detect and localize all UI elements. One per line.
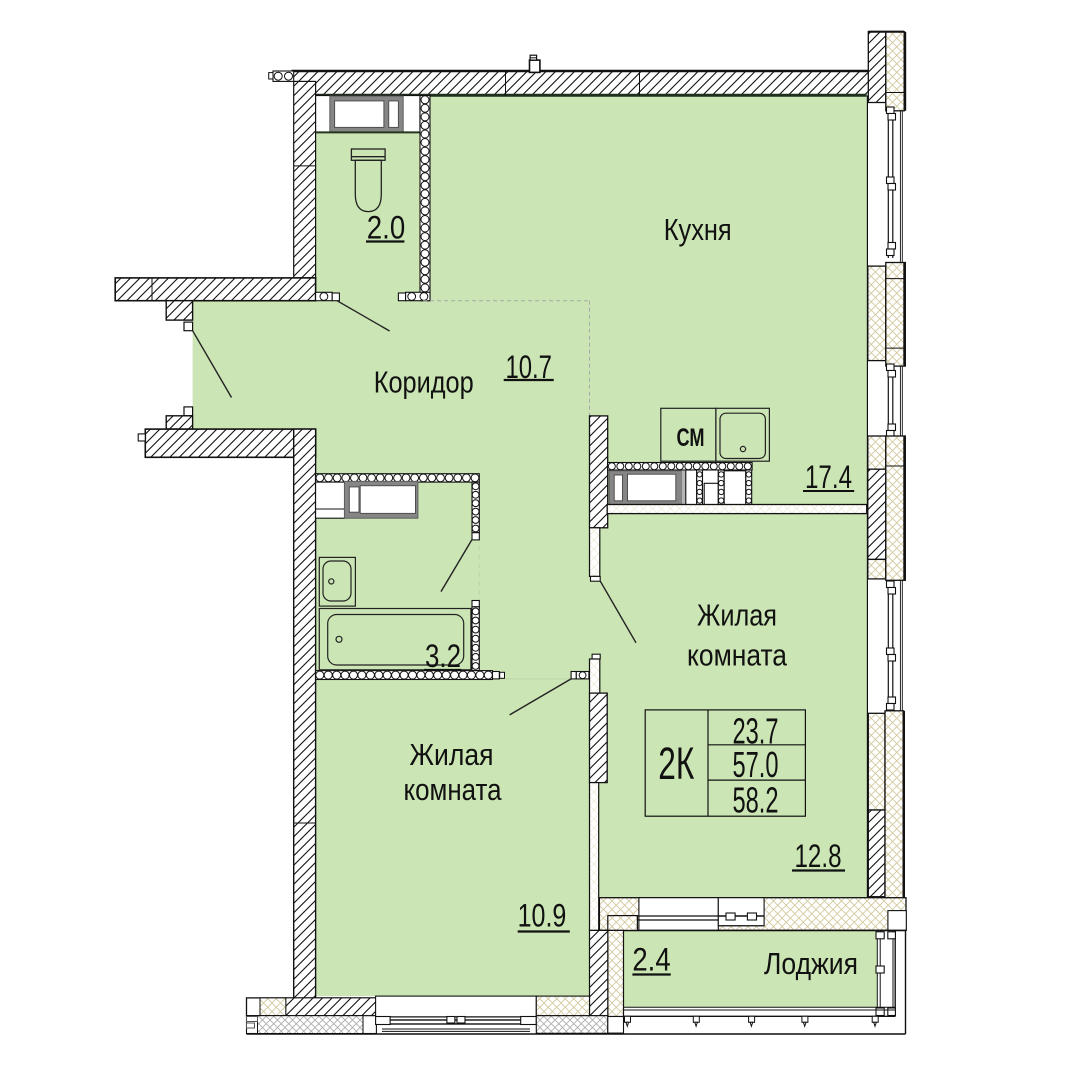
svg-text:17.4: 17.4 bbox=[805, 459, 852, 495]
svg-text:комната: комната bbox=[687, 638, 788, 673]
svg-text:58.2: 58.2 bbox=[733, 780, 779, 821]
svg-text:СМ: СМ bbox=[677, 424, 705, 452]
svg-text:3.2: 3.2 bbox=[425, 638, 461, 674]
svg-text:Жилая: Жилая bbox=[697, 598, 777, 633]
svg-text:Лоджия: Лоджия bbox=[764, 946, 858, 981]
svg-text:12.8: 12.8 bbox=[795, 838, 842, 874]
svg-text:10.9: 10.9 bbox=[518, 898, 567, 934]
svg-text:2К: 2К bbox=[658, 738, 694, 789]
svg-text:комната: комната bbox=[404, 772, 503, 807]
svg-text:Кухня: Кухня bbox=[664, 212, 732, 247]
svg-text:Коридор: Коридор bbox=[374, 365, 474, 400]
svg-text:2.4: 2.4 bbox=[632, 941, 670, 977]
svg-text:Жилая: Жилая bbox=[410, 737, 494, 772]
svg-text:2.0: 2.0 bbox=[367, 209, 405, 245]
